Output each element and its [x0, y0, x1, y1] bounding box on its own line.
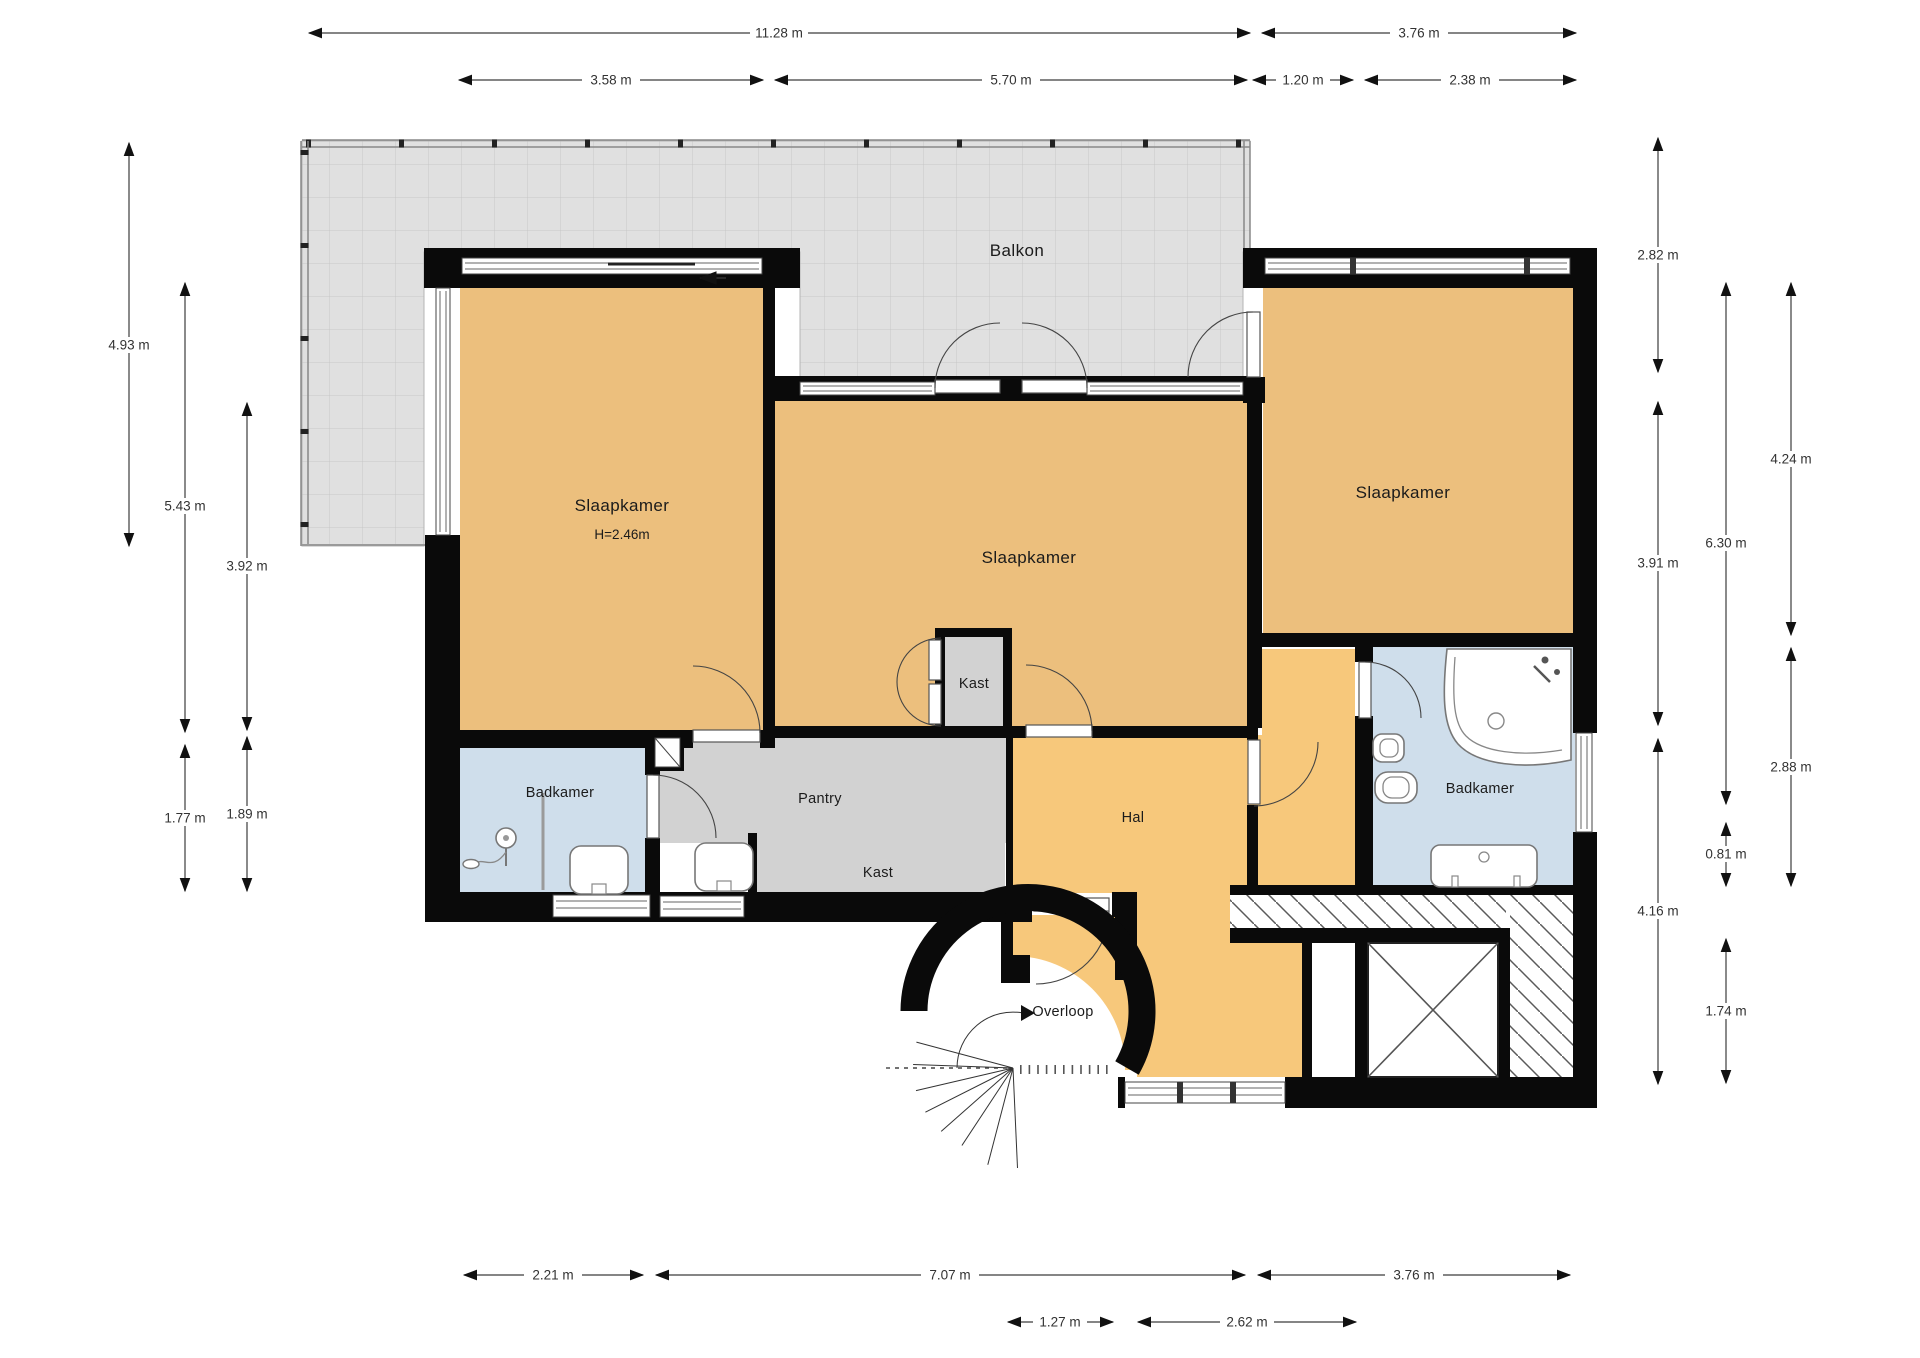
svg-text:0.81 m: 0.81 m [1705, 847, 1746, 862]
dim-top-bedroom2: 5.70 m [775, 72, 1247, 88]
bathroom-right-label: Badkamer [1446, 781, 1515, 797]
svg-text:1.27 m: 1.27 m [1039, 1315, 1080, 1330]
bedroom2-label: Slaapkamer [982, 548, 1077, 567]
svg-text:4.93 m: 4.93 m [108, 338, 149, 353]
dim-bottom-middle: 7.07 m [656, 1267, 1245, 1283]
duct [655, 738, 680, 767]
dim-right-niche: 0.81 m [1699, 823, 1753, 886]
svg-text:1.74 m: 1.74 m [1705, 1004, 1746, 1019]
svg-text:5.70 m: 5.70 m [990, 73, 1031, 88]
dim-right-bedroom3: 4.24 m [1764, 283, 1818, 635]
svg-text:4.24 m: 4.24 m [1770, 452, 1811, 467]
dim-bottom-landing: 1.27 m [1008, 1314, 1113, 1330]
dim-top-total-right: 3.76 m [1262, 25, 1576, 41]
shaft-hatch-vertical [1510, 895, 1573, 1077]
svg-text:3.58 m: 3.58 m [590, 73, 631, 88]
dim-bottom-bathroom: 2.21 m [464, 1267, 643, 1283]
balcony-label: Balkon [990, 241, 1044, 260]
dim-right-depth: 6.30 m [1699, 283, 1753, 804]
floorplan-drawing: Balkon Slaapkamer H=2.46m Slaapkamer Sla… [0, 0, 1920, 1358]
shaft-hatch-horizontal [1230, 895, 1506, 928]
svg-text:3.91 m: 3.91 m [1637, 556, 1678, 571]
dim-bottom-right: 3.76 m [1258, 1267, 1570, 1283]
svg-text:2.62 m: 2.62 m [1226, 1315, 1267, 1330]
svg-text:11.28 m: 11.28 m [755, 26, 803, 41]
closet-middle-label: Kast [959, 676, 989, 692]
svg-text:7.07 m: 7.07 m [929, 1268, 970, 1283]
elevator-shaft [1368, 943, 1498, 1077]
bedroom1-label: Slaapkamer [575, 496, 670, 515]
svg-text:3.76 m: 3.76 m [1393, 1268, 1434, 1283]
dim-left-bedroom1: 5.43 m [158, 283, 212, 732]
toilet-icon [1373, 734, 1404, 762]
dim-left-inner: 3.92 m [220, 403, 274, 730]
dim-left-bathroom-outer: 1.89 m [220, 737, 274, 891]
pantry-floor [658, 735, 1010, 843]
hall-bottom-window [1125, 1082, 1285, 1103]
svg-text:6.30 m: 6.30 m [1705, 536, 1746, 551]
svg-text:1.89 m: 1.89 m [226, 807, 267, 822]
dim-bottom-hall: 2.62 m [1138, 1314, 1356, 1330]
dim-right-bedroom2: 3.91 m [1631, 402, 1685, 725]
dim-right-hall: 4.16 m [1631, 739, 1685, 1084]
svg-text:3.76 m: 3.76 m [1398, 26, 1439, 41]
bathroom-right-window [1576, 733, 1592, 832]
bathtub-icon [1444, 649, 1571, 765]
washbasin-niche-icon [695, 843, 753, 891]
svg-text:2.21 m: 2.21 m [532, 1268, 573, 1283]
dim-top-passage: 1.20 m [1253, 72, 1353, 88]
svg-text:2.88 m: 2.88 m [1770, 760, 1811, 775]
hall-label: Hal [1122, 810, 1145, 826]
pantry-label: Pantry [798, 791, 842, 807]
dim-top-bedroom3: 2.38 m [1365, 72, 1576, 88]
dim-top-total-left: 11.28 m [309, 25, 1250, 41]
dim-top-bedroom1: 3.58 m [459, 72, 763, 88]
closet-bottom-label: Kast [863, 865, 893, 881]
washbasin-right-icon [1431, 845, 1537, 887]
dim-left-bathroom: 1.77 m [158, 745, 212, 891]
svg-text:2.82 m: 2.82 m [1637, 248, 1678, 263]
bedroom1-height-label: H=2.46m [594, 527, 649, 542]
landing-label: Overloop [1032, 1004, 1093, 1020]
dim-left-balcony: 4.93 m [102, 143, 156, 546]
bedroom3-floor [1263, 286, 1575, 633]
svg-text:4.16 m: 4.16 m [1637, 904, 1678, 919]
dim-right-elevator: 1.74 m [1699, 939, 1753, 1083]
bedroom3-top-window [1265, 258, 1570, 274]
svg-text:3.92 m: 3.92 m [226, 559, 267, 574]
bidet-icon [1375, 772, 1417, 803]
washbasin-left-icon [570, 846, 628, 894]
svg-text:1.77 m: 1.77 m [164, 811, 205, 826]
floorplan-page: Balkon Slaapkamer H=2.46m Slaapkamer Sla… [0, 0, 1920, 1358]
svg-text:5.43 m: 5.43 m [164, 499, 205, 514]
dim-right-upper: 2.82 m [1631, 138, 1685, 372]
niche-window [660, 896, 744, 917]
dim-right-bathroom: 2.88 m [1764, 648, 1818, 886]
svg-text:2.38 m: 2.38 m [1449, 73, 1490, 88]
bathroom-left-window [553, 895, 650, 917]
bedroom1-left-window [436, 288, 450, 535]
svg-text:1.20 m: 1.20 m [1282, 73, 1323, 88]
bedroom3-label: Slaapkamer [1356, 483, 1451, 502]
bathroom-left-label: Badkamer [526, 785, 595, 801]
